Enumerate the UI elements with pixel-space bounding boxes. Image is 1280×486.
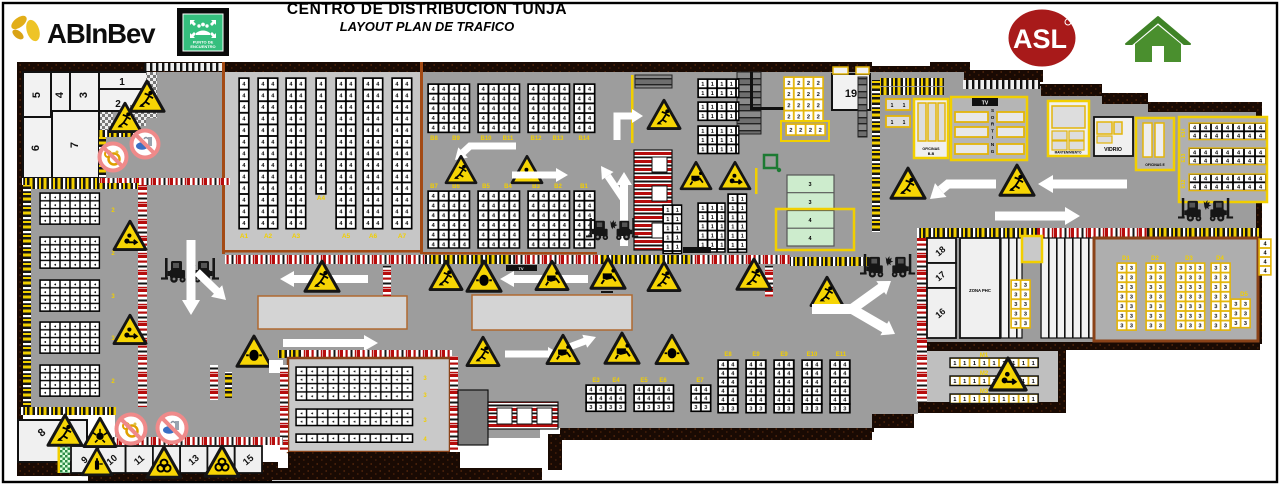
svg-text:1: 1 xyxy=(119,77,125,88)
svg-text:LAYOUT PLAN DE TRAFICO: LAYOUT PLAN DE TRAFICO xyxy=(340,19,515,34)
svg-text:B9: B9 xyxy=(452,136,460,142)
svg-text:1: 1 xyxy=(891,103,894,109)
svg-text:3: 3 xyxy=(78,92,90,98)
svg-text:ASL: ASL xyxy=(1013,24,1067,54)
svg-text:D2: D2 xyxy=(1151,256,1159,262)
svg-text:ENCUENTRO: ENCUENTRO xyxy=(190,44,215,49)
svg-text:B-B: B-B xyxy=(928,152,935,156)
svg-text:B11: B11 xyxy=(503,136,514,142)
svg-text:D1: D1 xyxy=(1122,256,1130,262)
svg-text:E9: E9 xyxy=(780,352,788,358)
svg-text:E7: E7 xyxy=(696,378,704,384)
svg-text:A1: A1 xyxy=(240,233,249,240)
svg-text:D3: D3 xyxy=(1185,256,1193,262)
svg-text:7: 7 xyxy=(69,142,81,148)
svg-text:D5: D5 xyxy=(1240,292,1248,298)
svg-text:B5: B5 xyxy=(482,184,490,190)
svg-text:S: S xyxy=(991,108,994,113)
svg-text:B1: B1 xyxy=(580,184,588,190)
svg-text:E9: E9 xyxy=(752,352,760,358)
svg-text:MANTENIMIENTO: MANTENIMIENTO xyxy=(1055,151,1082,155)
svg-text:1: 1 xyxy=(903,103,906,109)
svg-text:B7: B7 xyxy=(430,184,438,190)
svg-text:4: 4 xyxy=(54,91,66,98)
svg-text:D4: D4 xyxy=(1216,256,1224,262)
svg-text:A6: A6 xyxy=(369,233,378,240)
svg-text:ZONA PHC: ZONA PHC xyxy=(969,288,991,293)
svg-text:A4: A4 xyxy=(317,195,326,202)
svg-text:ABInBev: ABInBev xyxy=(47,18,156,49)
svg-text:E5: E5 xyxy=(640,378,648,384)
svg-text:1: 1 xyxy=(891,120,894,126)
svg-text:3: 3 xyxy=(808,200,811,206)
svg-text:B6: B6 xyxy=(452,184,460,190)
svg-text:B8: B8 xyxy=(430,136,438,142)
svg-text:G: G xyxy=(991,149,995,154)
svg-text:B10: B10 xyxy=(480,136,492,142)
svg-text:E4: E4 xyxy=(612,378,620,384)
svg-text:T: T xyxy=(991,128,994,133)
svg-text:B13: B13 xyxy=(552,136,564,142)
svg-text:E13: E13 xyxy=(1181,153,1187,162)
svg-text:E3: E3 xyxy=(592,378,600,384)
svg-text:5: 5 xyxy=(31,92,43,98)
svg-text:E8: E8 xyxy=(724,352,732,358)
svg-text:E14: E14 xyxy=(1181,128,1187,137)
svg-text:E10: E10 xyxy=(807,352,818,358)
svg-text:B14: B14 xyxy=(578,136,590,142)
svg-text:B12: B12 xyxy=(530,136,542,142)
svg-text:3: 3 xyxy=(808,182,811,188)
svg-text:A2: A2 xyxy=(264,233,273,240)
svg-text:E12: E12 xyxy=(1181,179,1187,188)
svg-text:I: I xyxy=(992,135,993,140)
svg-text:6: 6 xyxy=(30,145,42,151)
svg-text:TV: TV xyxy=(518,266,523,271)
svg-text:OFICINAS E: OFICINAS E xyxy=(1145,163,1165,167)
svg-text:1: 1 xyxy=(903,120,906,126)
svg-text:A7: A7 xyxy=(398,233,407,240)
svg-text:CENTRO DE DISTRIBUCION TUNJA: CENTRO DE DISTRIBUCION TUNJA xyxy=(287,1,567,18)
svg-text:19: 19 xyxy=(845,88,857,100)
svg-text:OFICINAS: OFICINAS xyxy=(922,147,940,151)
svg-text:E11: E11 xyxy=(836,352,847,358)
svg-text:B4: B4 xyxy=(504,184,512,190)
svg-text:A5: A5 xyxy=(342,233,351,240)
svg-text:B2: B2 xyxy=(554,184,562,190)
svg-text:VIDRIO: VIDRIO xyxy=(1104,147,1122,153)
svg-text:B3: B3 xyxy=(532,184,540,190)
svg-text:TV: TV xyxy=(982,101,989,107)
svg-text:O: O xyxy=(991,115,995,120)
svg-text:2: 2 xyxy=(115,99,121,110)
svg-text:A3: A3 xyxy=(292,233,301,240)
svg-text:E6: E6 xyxy=(659,378,667,384)
